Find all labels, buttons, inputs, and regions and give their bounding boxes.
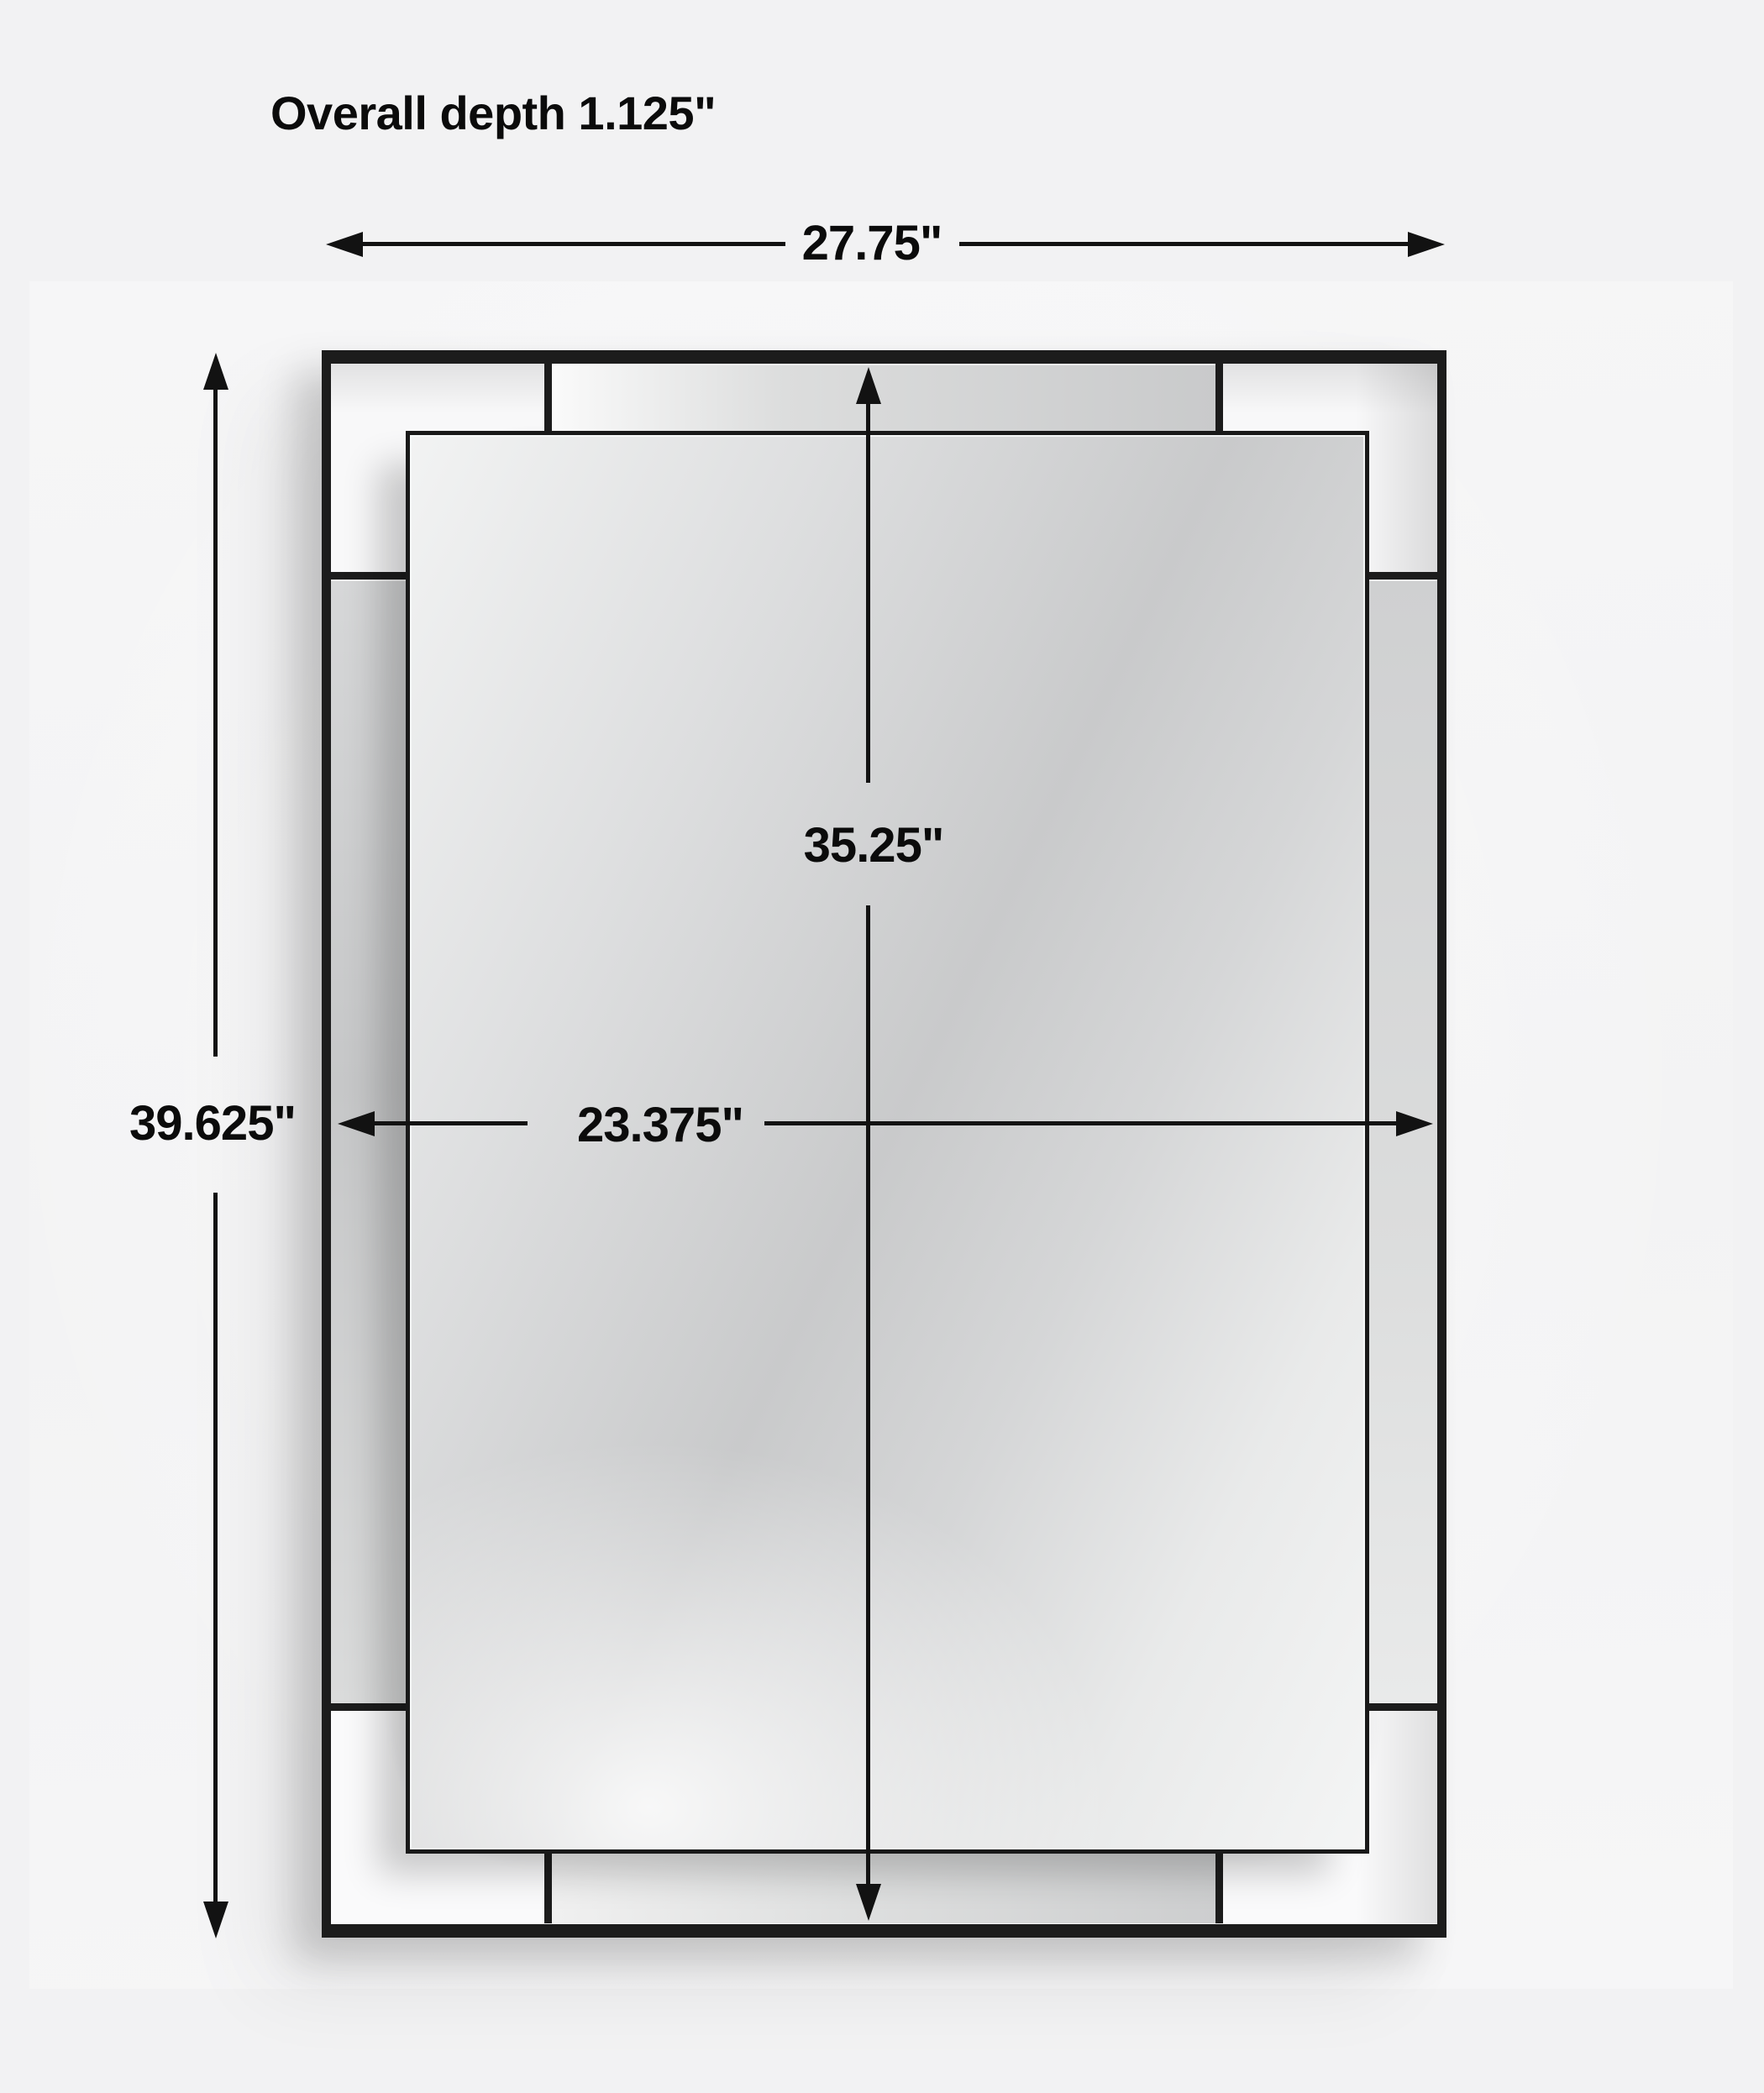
arrow-up-icon — [203, 353, 228, 390]
dim-line-mirror-height — [866, 402, 870, 783]
dim-label-mirror-width: 23.375" — [577, 1097, 743, 1153]
dim-label-mirror-height: 35.25" — [804, 817, 944, 873]
arrow-right-icon — [1396, 1111, 1433, 1136]
dim-line-mirror-width — [373, 1121, 528, 1125]
mirror-dimension-diagram: Overall depth 1.125" 27.75" 39.625" 35.2… — [0, 0, 1764, 2093]
depth-note: Overall depth 1.125" — [270, 86, 716, 140]
arrow-up-icon — [856, 367, 881, 404]
dim-line-overall-width — [959, 242, 1410, 246]
arrow-left-icon — [338, 1111, 375, 1136]
dim-label-overall-height: 39.625" — [129, 1095, 296, 1151]
dim-line-overall-width — [361, 242, 785, 246]
arrow-left-icon — [326, 232, 363, 257]
dim-line-overall-height — [213, 1193, 218, 1903]
dim-label-overall-width: 27.75" — [802, 215, 942, 271]
arrow-down-icon — [203, 1902, 228, 1938]
mirror-center-panel — [406, 431, 1369, 1854]
dim-line-overall-height — [213, 388, 218, 1057]
arrow-right-icon — [1408, 232, 1445, 257]
dim-line-mirror-width — [764, 1121, 1398, 1125]
mirror-glass — [410, 435, 1365, 1849]
arrow-down-icon — [856, 1884, 881, 1921]
dim-line-mirror-height — [866, 905, 870, 1886]
